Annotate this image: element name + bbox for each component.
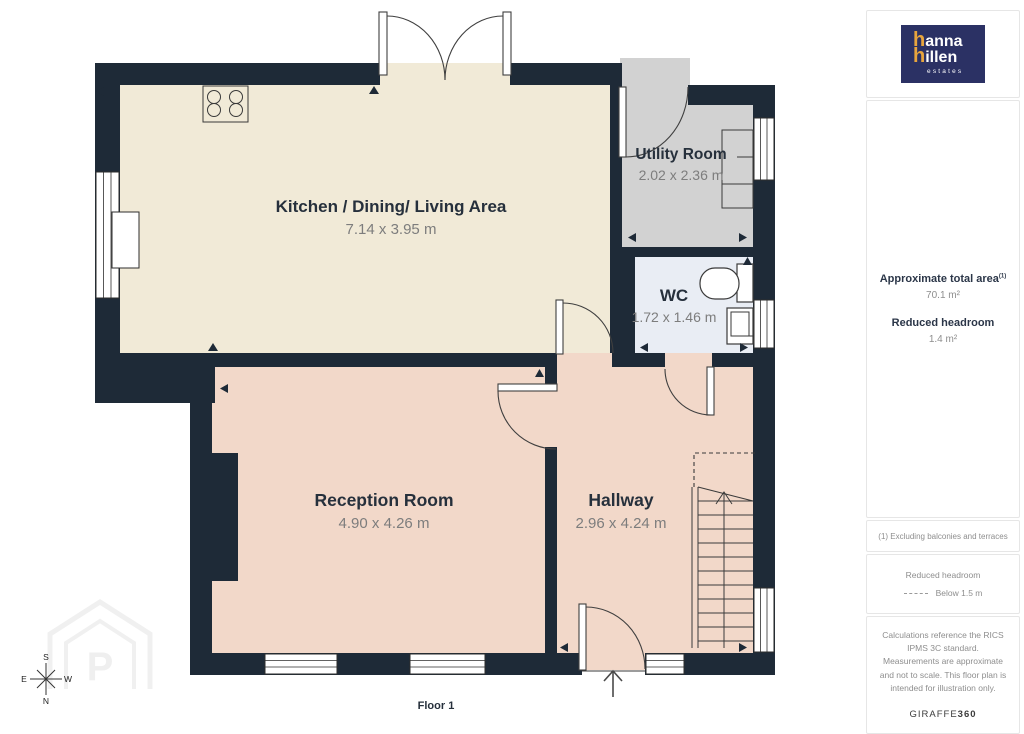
radiator [112,212,139,268]
window-hall-bottom [646,654,684,674]
headroom-legend-card: Reduced headroom Below 1.5 m [866,554,1020,614]
hallway-label: Hallway [588,490,653,510]
window-reception-b [410,654,485,674]
window-reception-a [265,654,337,674]
logo-word-illen: illen [925,51,957,65]
area-info-card: Approximate total area(1) 70.1 m² Reduce… [866,100,1020,518]
footnote-marker: (1) [999,273,1006,279]
reception-label: Reception Room [314,490,453,510]
sink-icon [727,308,753,344]
total-area-heading: Approximate total area(1) [880,273,1007,285]
kitchen-label: Kitchen / Dining/ Living Area [276,197,507,216]
dashed-line-sample [904,593,928,594]
info-sidebar: hanna hillen estates Approximate total a… [866,10,1020,734]
wc-label: WC [660,286,688,305]
logo-word-anna: anna [925,35,962,49]
watermark-letter: P [87,645,114,689]
compass-east: E [21,674,27,684]
logo-letter-h2: h [913,49,925,63]
reduced-headroom-value: 1.4 m² [929,334,957,345]
compass-west: W [64,674,72,684]
footnote-card: (1) Excluding balconies and terraces [866,520,1020,552]
reception-floor [212,367,545,653]
kitchen-dims: 7.14 x 3.95 m [346,221,437,238]
wc-dims: 1.72 x 1.46 m [632,309,717,325]
agency-logo-card: hanna hillen estates [866,10,1020,98]
reduced-headroom-heading: Reduced headroom [892,317,995,329]
total-area-value: 70.1 m² [926,290,960,301]
compass-south: S [43,652,49,662]
reception-dims: 4.90 x 4.26 m [339,515,430,532]
floor-plan: P S N E W Kitchen / Dining/ Living Area … [0,0,860,724]
window-utility [754,118,774,180]
utility-floor [622,85,753,247]
giraffe360-brand: GIRAFFE360 [879,708,1007,723]
legend-item: Below 1.5 m [936,588,983,598]
logo-tagline: estates [927,68,985,75]
disclaimer-text: Calculations reference the RICS IPMS 3C … [879,629,1007,695]
agency-logo: hanna hillen estates [901,25,985,83]
hallway-dims: 2.96 x 4.24 m [576,515,667,532]
window-wc [754,300,774,348]
footnote-text: (1) Excluding balconies and terraces [878,532,1007,541]
toilet-icon [700,264,753,302]
utility-dims: 2.02 x 2.36 m [639,167,724,183]
disclaimer-card: Calculations reference the RICS IPMS 3C … [866,616,1020,734]
entrance-arrow-icon [604,671,622,697]
legend-title: Reduced headroom [906,570,981,580]
kitchen-floor [120,85,610,353]
utility-step [620,58,690,85]
utility-label: Utility Room [635,146,726,163]
window-hallway [754,588,774,652]
chimney-breast [212,453,238,581]
compass-north: N [43,696,49,706]
floor-label: Floor 1 [418,700,455,712]
